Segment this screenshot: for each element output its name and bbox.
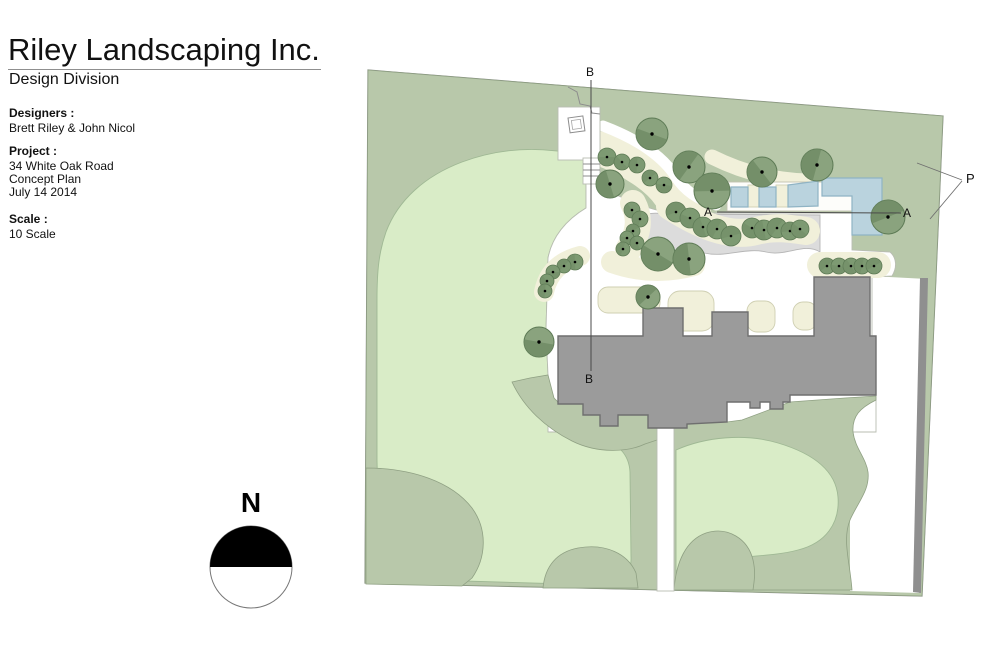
shrub [721,226,741,246]
pool-planter [776,185,788,207]
section-label-b-bottom: B [585,372,593,386]
tree [636,118,668,150]
tree [596,170,624,198]
water-feature [731,187,748,207]
water-feature [759,187,776,207]
shrub [656,177,672,193]
tree [694,173,730,209]
tree [636,285,660,309]
tree [524,327,554,357]
pool-planter [748,185,760,207]
section-label-a-right: A [903,206,911,220]
north-compass: N [210,487,292,608]
tree [747,157,777,187]
shrub [614,154,630,170]
shrub [791,220,809,238]
walkway [657,428,674,591]
tree [871,200,905,234]
sheet: Riley Landscaping Inc. Design Division D… [0,0,1000,666]
shrub [598,148,616,166]
shrub [538,284,552,298]
water-feature [788,181,818,207]
north-label: N [241,487,261,518]
shrub [616,242,630,256]
shrub [642,170,658,186]
shrub [629,157,645,173]
shrub [866,258,882,274]
compass-north-half [210,526,292,567]
patio-table [568,116,585,133]
property-label-p: P [966,171,975,186]
tree [801,149,833,181]
tree [673,243,705,275]
section-label-b-top: B [586,65,594,79]
concept-plan-drawing: B B A A P N [0,0,1000,666]
tree [641,237,675,271]
section-label-a-left: A [704,205,712,219]
